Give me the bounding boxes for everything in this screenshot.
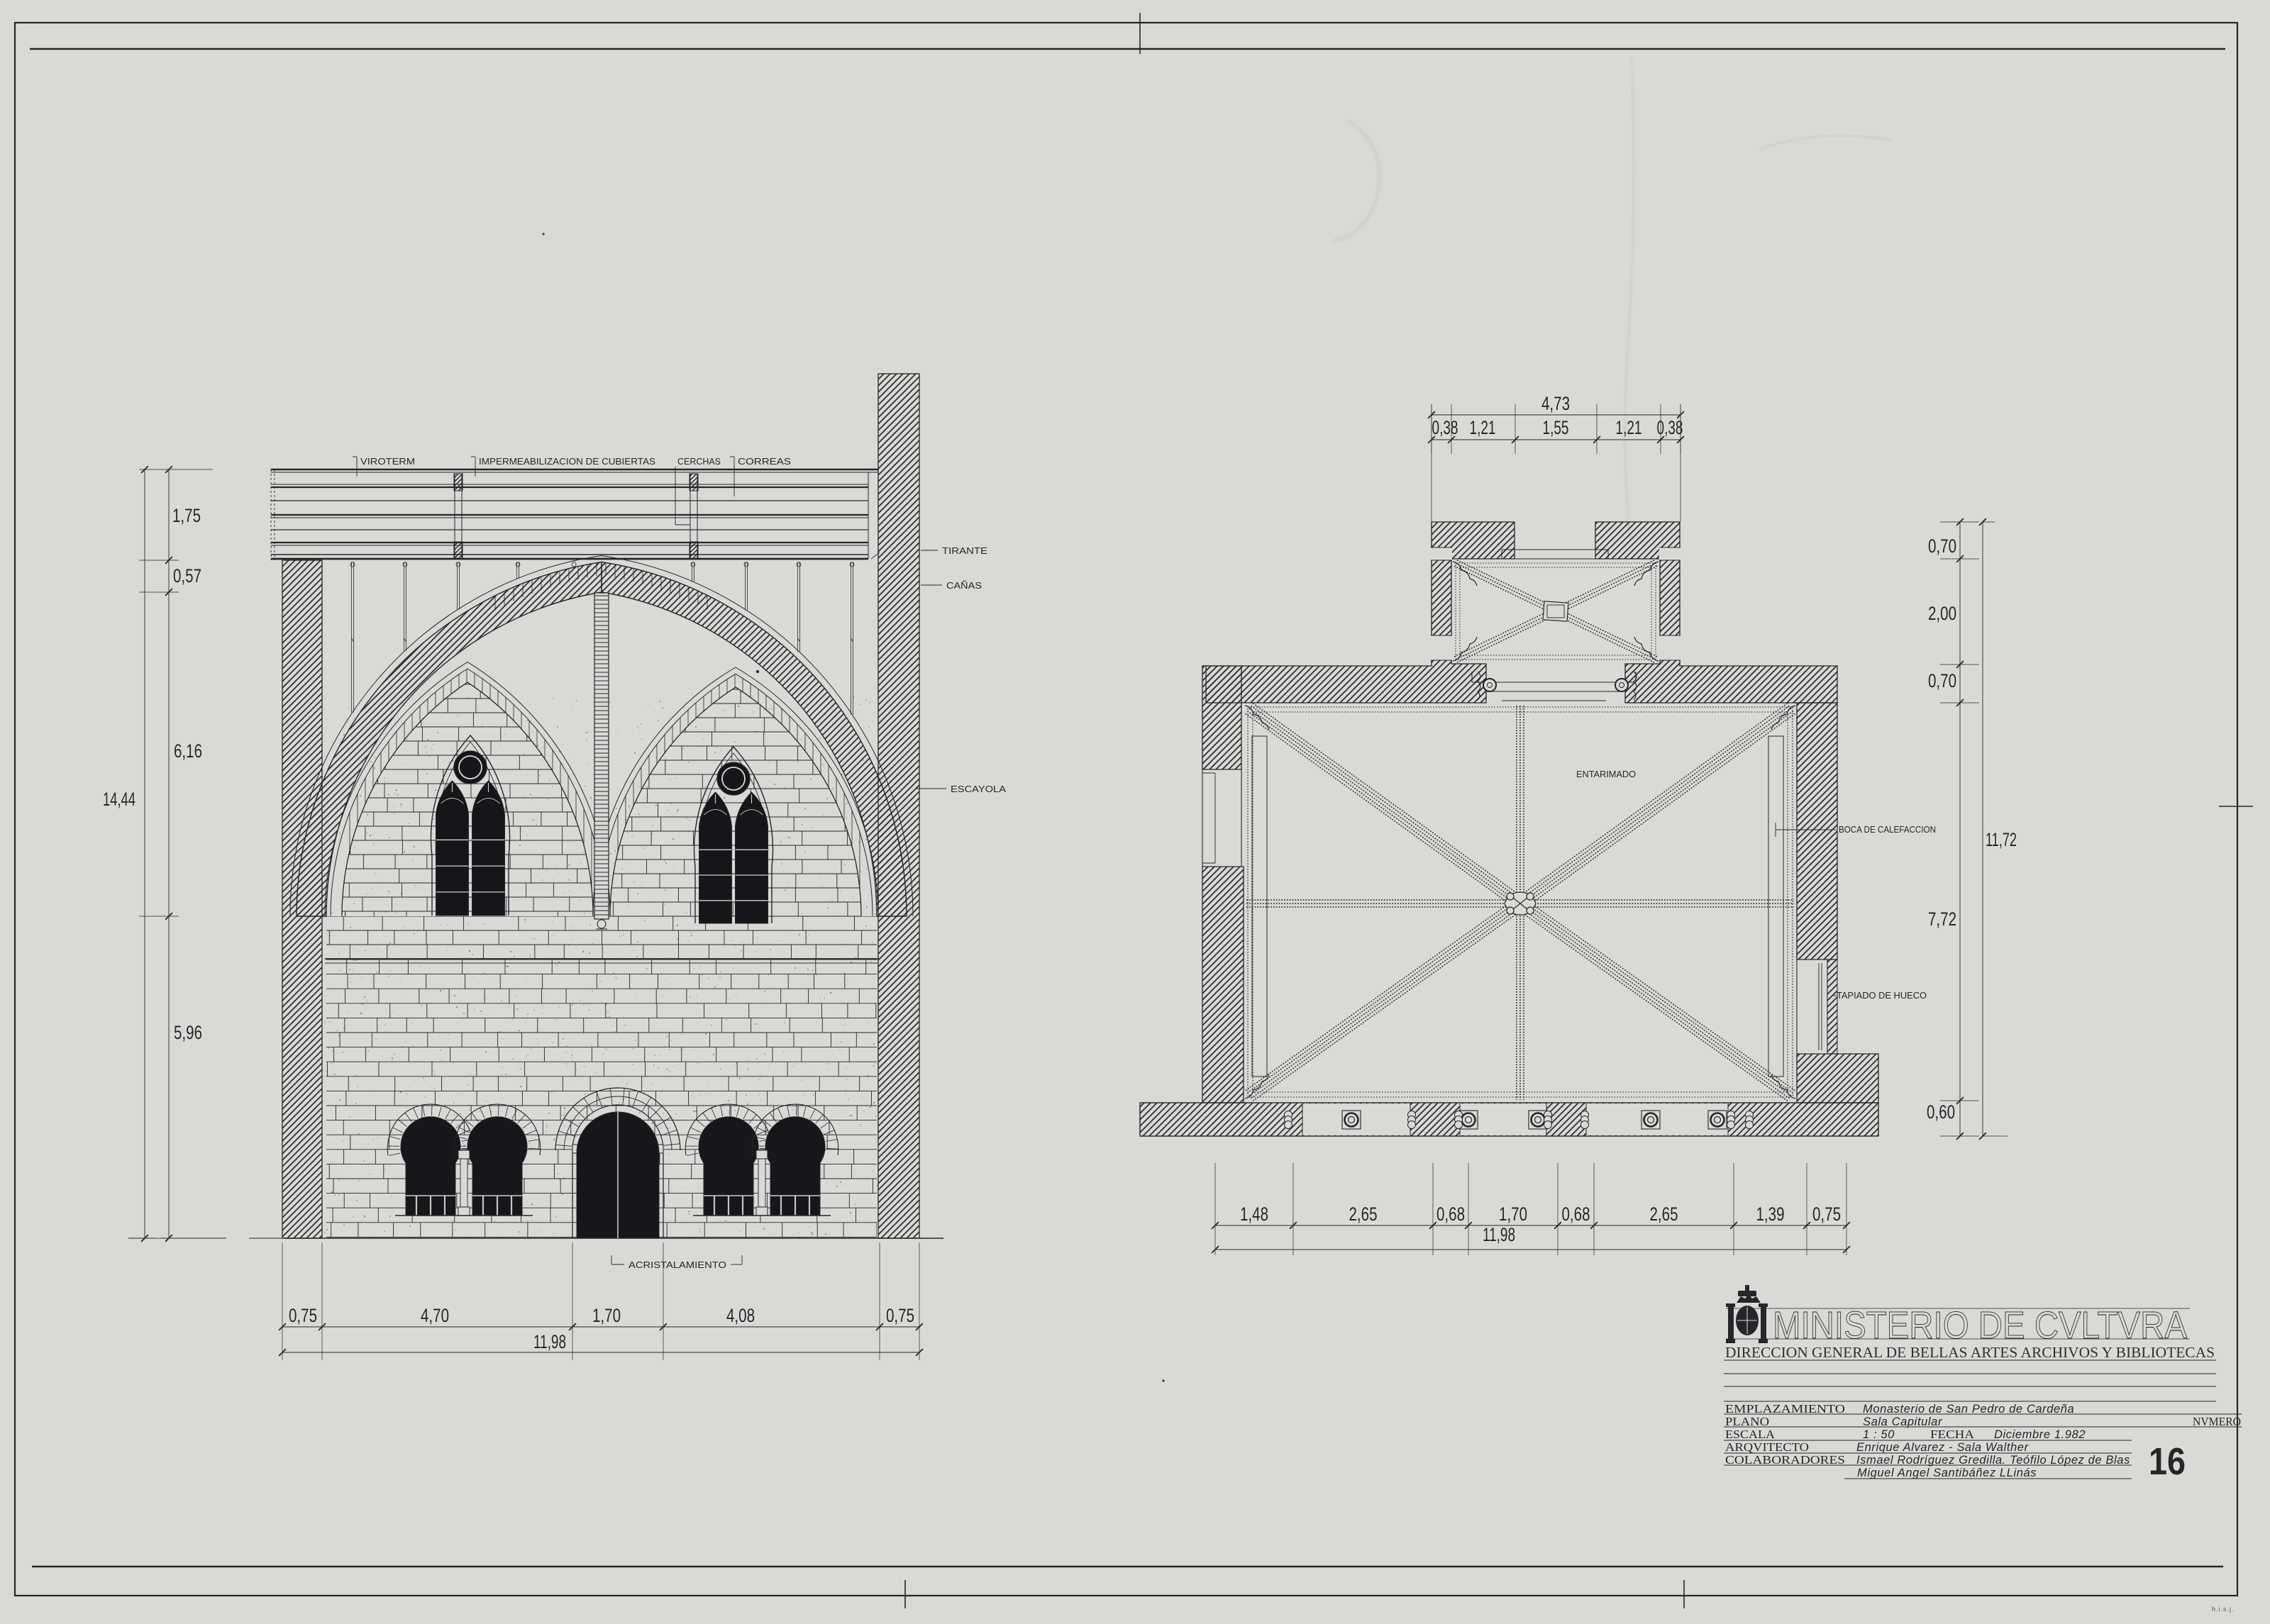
- svg-text:h.i.s.j.: h.i.s.j.: [2212, 1606, 2235, 1613]
- svg-text:2,65: 2,65: [1349, 1203, 1378, 1225]
- svg-text:0,68: 0,68: [1436, 1203, 1465, 1225]
- svg-text:0,75: 0,75: [289, 1305, 317, 1326]
- svg-text:0,38: 0,38: [1657, 417, 1683, 438]
- svg-text:NVMERO: NVMERO: [2193, 1415, 2241, 1428]
- svg-text:1,39: 1,39: [1756, 1203, 1785, 1225]
- svg-text:16: 16: [2149, 1440, 2186, 1483]
- svg-text:Ismael Rodríguez Gredilla. T: Ismael Rodríguez Gredilla. Teófilo López…: [1856, 1454, 2130, 1467]
- svg-text:0,57: 0,57: [173, 565, 201, 586]
- svg-text:DIRECCION GENERAL DE BELLAS AR: DIRECCION GENERAL DE BELLAS ARTES ARCHIV…: [1725, 1344, 2215, 1361]
- svg-text:CAÑAS: CAÑAS: [946, 580, 982, 591]
- svg-text:1,21: 1,21: [1616, 417, 1642, 438]
- svg-text:11,98: 11,98: [1483, 1224, 1515, 1245]
- svg-text:0,75: 0,75: [1812, 1203, 1841, 1225]
- svg-text:1,48: 1,48: [1240, 1203, 1268, 1225]
- svg-text:6,16: 6,16: [174, 740, 202, 762]
- svg-text:7,72: 7,72: [1928, 908, 1956, 930]
- svg-text:1,70: 1,70: [1499, 1203, 1527, 1225]
- svg-text:ESCALA: ESCALA: [1725, 1428, 1776, 1441]
- svg-text:0,70: 0,70: [1928, 670, 1956, 691]
- svg-text:FECHA: FECHA: [1930, 1428, 1975, 1441]
- svg-text:2,65: 2,65: [1650, 1203, 1678, 1225]
- svg-text:5,96: 5,96: [174, 1022, 202, 1043]
- svg-text:0,68: 0,68: [1562, 1203, 1590, 1225]
- svg-text:EMPLAZAMIENTO: EMPLAZAMIENTO: [1725, 1402, 1845, 1416]
- svg-text:1,70: 1,70: [592, 1305, 621, 1326]
- svg-text:11,98: 11,98: [533, 1331, 566, 1352]
- svg-text:Diciembre 1.982: Diciembre 1.982: [1994, 1428, 2086, 1441]
- svg-text:TIRANTE: TIRANTE: [942, 545, 987, 556]
- svg-text:CORREAS: CORREAS: [738, 456, 791, 467]
- svg-text:1,75: 1,75: [172, 505, 201, 526]
- svg-text:ESCAYOLA: ESCAYOLA: [951, 784, 1006, 794]
- svg-text:0,70: 0,70: [1928, 535, 1956, 557]
- svg-text:ACRISTALAMIENTO: ACRISTALAMIENTO: [629, 1259, 726, 1270]
- svg-text:TAPIADO DE HUECO: TAPIADO DE HUECO: [1837, 991, 1927, 1001]
- svg-text:ENTARIMADO: ENTARIMADO: [1576, 769, 1636, 779]
- svg-text:MINISTERIO DE CVLTVRA: MINISTERIO DE CVLTVRA: [1773, 1304, 2187, 1347]
- svg-text:0,60: 0,60: [1927, 1101, 1955, 1123]
- svg-text:PLANO: PLANO: [1725, 1415, 1769, 1428]
- svg-text:BOCA DE CALEFACCION: BOCA DE CALEFACCION: [1839, 825, 1936, 835]
- svg-text:1,55: 1,55: [1543, 417, 1569, 438]
- svg-text:11,72: 11,72: [1986, 829, 2017, 850]
- svg-text:4,73: 4,73: [1541, 393, 1570, 414]
- svg-text:CERCHAS: CERCHAS: [677, 456, 721, 467]
- svg-text:Monasterio de San Pedro de Car: Monasterio de San Pedro de Cardeña: [1863, 1403, 2074, 1416]
- svg-text:0,38: 0,38: [1432, 417, 1458, 438]
- svg-text:Miguel Angel Santibáñez LLi: Miguel Angel Santibáñez LLinás: [1857, 1467, 2037, 1479]
- svg-text:Enrique Alvarez - Sala Walth: Enrique Alvarez - Sala Walther: [1856, 1441, 2030, 1454]
- svg-text:Sala Capitular: Sala Capitular: [1863, 1416, 1943, 1428]
- svg-text:4,70: 4,70: [421, 1305, 449, 1326]
- svg-text:COLABORADORES: COLABORADORES: [1725, 1453, 1845, 1467]
- svg-text:1 : 50: 1 : 50: [1863, 1428, 1895, 1441]
- svg-text:4,08: 4,08: [726, 1305, 755, 1326]
- svg-text:0,75: 0,75: [886, 1305, 914, 1326]
- svg-text:VIROTERM: VIROTERM: [360, 456, 415, 467]
- svg-text:2,00: 2,00: [1928, 603, 1956, 624]
- svg-text:1,21: 1,21: [1470, 417, 1496, 438]
- svg-text:14,44: 14,44: [103, 789, 135, 810]
- svg-text:IMPERMEABILIZACION DE CUBIERTA: IMPERMEABILIZACION DE CUBIERTAS: [479, 456, 655, 467]
- svg-text:ARQVITECTO: ARQVITECTO: [1725, 1440, 1809, 1454]
